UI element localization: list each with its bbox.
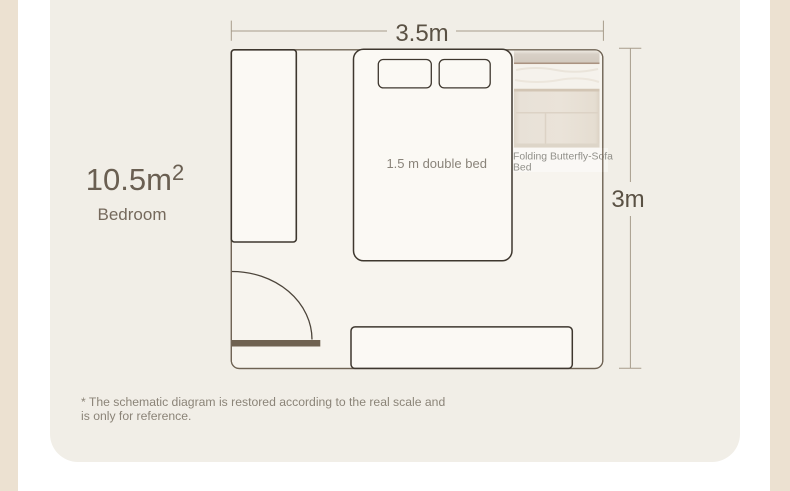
svg-text:1.5 m double bed: 1.5 m double bed [386, 156, 486, 171]
svg-text:Folding Butterfly-Sofa: Folding Butterfly-Sofa [513, 152, 613, 163]
svg-text:3.5m: 3.5m [395, 20, 448, 47]
svg-text:3m: 3m [611, 186, 644, 213]
svg-text:Bed: Bed [513, 163, 532, 174]
